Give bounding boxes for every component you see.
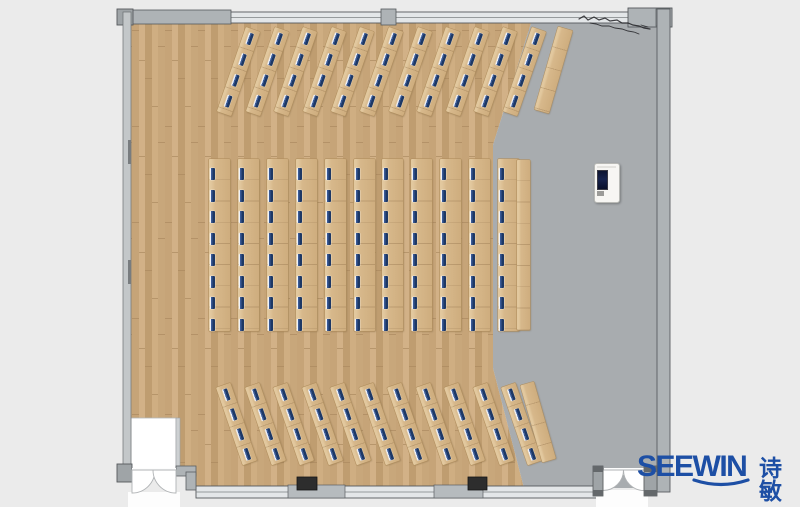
laptop-marker — [422, 388, 431, 401]
laptop-marker — [331, 32, 340, 45]
laptop-marker — [355, 297, 360, 309]
laptop-marker — [253, 95, 262, 108]
laptop-marker — [297, 297, 302, 309]
laptop-marker — [499, 448, 508, 461]
laptop-marker — [239, 254, 244, 266]
laptop-marker — [396, 95, 405, 108]
laptop-marker — [274, 32, 283, 45]
laptop-marker — [314, 408, 323, 421]
laptop-marker — [496, 53, 505, 66]
laptop-marker — [293, 428, 302, 441]
laptop-marker — [424, 95, 433, 108]
laptop-marker — [412, 190, 417, 202]
laptop-marker — [431, 74, 440, 87]
laptop-marker — [467, 53, 476, 66]
laptop-marker — [457, 408, 466, 421]
laptop-marker — [492, 428, 501, 441]
laptop-marker — [210, 233, 215, 245]
laptop-marker — [400, 408, 409, 421]
desk-row — [382, 159, 403, 331]
desk-row — [330, 383, 371, 465]
laptop-marker — [383, 233, 388, 245]
laptop-marker — [297, 168, 302, 180]
laptop-marker — [412, 233, 417, 245]
laptop-marker — [441, 319, 446, 331]
desk-row — [296, 159, 317, 331]
laptop-marker — [328, 448, 337, 461]
laptop-marker — [353, 53, 362, 66]
laptop-marker — [238, 53, 247, 66]
laptop-marker — [383, 168, 388, 180]
laptop-marker — [412, 319, 417, 331]
laptop-marker — [343, 408, 352, 421]
laptop-marker — [239, 319, 244, 331]
laptop-marker — [460, 74, 469, 87]
laptop-marker — [441, 233, 446, 245]
laptop-marker — [326, 168, 331, 180]
podium-slot — [597, 191, 604, 196]
laptop-marker — [481, 95, 490, 108]
laptop-marker — [471, 448, 480, 461]
laptop-marker — [229, 408, 238, 421]
laptop-marker — [446, 32, 455, 45]
laptop-marker — [371, 408, 380, 421]
laptop-marker — [355, 168, 360, 180]
desk-row — [360, 27, 403, 116]
desk-row — [216, 383, 257, 465]
laptop-marker — [303, 32, 312, 45]
laptop-marker — [268, 211, 273, 223]
laptop-marker — [295, 53, 304, 66]
laptop-marker — [338, 95, 347, 108]
laptop-marker — [326, 211, 331, 223]
laptop-marker — [470, 233, 475, 245]
laptop-marker — [499, 190, 504, 202]
laptop-marker — [326, 297, 331, 309]
laptop-marker — [470, 254, 475, 266]
laptop-marker — [297, 254, 302, 266]
desk-row — [444, 383, 485, 465]
laptop-marker — [357, 448, 366, 461]
laptop-marker — [499, 254, 504, 266]
laptop-marker — [239, 168, 244, 180]
laptop-marker — [383, 276, 388, 288]
laptop-marker — [268, 319, 273, 331]
desk-row — [217, 27, 260, 116]
laptop-marker — [210, 254, 215, 266]
laptop-marker — [326, 190, 331, 202]
laptop-marker — [210, 276, 215, 288]
laptop-marker — [271, 448, 280, 461]
desk-row — [325, 159, 346, 331]
laptop-marker — [268, 233, 273, 245]
desk-row — [245, 383, 286, 465]
laptop-marker — [350, 428, 359, 441]
laptop-marker — [383, 319, 388, 331]
laptop-marker — [326, 254, 331, 266]
laptop-marker — [470, 297, 475, 309]
podium-top-edge — [597, 166, 616, 168]
laptop-marker — [374, 74, 383, 87]
desk-row — [303, 27, 346, 116]
laptop-marker — [297, 319, 302, 331]
laptop-marker — [321, 428, 330, 441]
laptop-marker — [210, 297, 215, 309]
laptop-marker — [383, 190, 388, 202]
desk-row — [469, 159, 490, 331]
laptop-marker — [514, 408, 523, 421]
laptop-marker — [470, 211, 475, 223]
laptop-marker — [488, 74, 497, 87]
laptop-marker — [474, 32, 483, 45]
laptop-marker — [503, 32, 512, 45]
laptop-marker — [410, 53, 419, 66]
desk-row — [274, 27, 317, 116]
laptop-marker — [224, 95, 233, 108]
laptop-marker — [367, 95, 376, 108]
laptop-marker — [510, 95, 519, 108]
laptop-marker — [267, 53, 276, 66]
laptop-marker — [479, 388, 488, 401]
empty-desk-row — [517, 160, 530, 330]
laptop-marker — [239, 233, 244, 245]
laptop-marker — [412, 211, 417, 223]
laptop-marker — [378, 428, 387, 441]
laptop-marker — [210, 211, 215, 223]
front-angled-rows — [0, 0, 800, 507]
laptop-marker — [393, 388, 402, 401]
laptop-marker — [441, 254, 446, 266]
desk-row — [474, 27, 517, 116]
desk-row — [498, 159, 519, 331]
laptop-marker — [412, 254, 417, 266]
laptop-marker — [288, 74, 297, 87]
laptop-marker — [268, 297, 273, 309]
laptop-marker — [268, 190, 273, 202]
laptop-marker — [381, 53, 390, 66]
desk-row — [417, 27, 460, 116]
laptop-marker — [528, 448, 537, 461]
desk-layer — [0, 0, 800, 507]
laptop-marker — [485, 408, 494, 421]
laptop-marker — [286, 408, 295, 421]
laptop-marker — [412, 168, 417, 180]
laptop-marker — [355, 319, 360, 331]
desk-row — [446, 27, 489, 116]
laptop-marker — [210, 190, 215, 202]
desk-row — [331, 27, 374, 116]
laptop-marker — [239, 297, 244, 309]
desk-row — [440, 159, 461, 331]
empty-desk-row — [520, 382, 556, 463]
laptop-marker — [453, 95, 462, 108]
laptop-marker — [355, 254, 360, 266]
laptop-marker — [499, 211, 504, 223]
laptop-marker — [324, 53, 333, 66]
laptop-marker — [388, 32, 397, 45]
laptop-marker — [317, 74, 326, 87]
laptop-marker — [260, 74, 269, 87]
laptop-marker — [521, 428, 530, 441]
laptop-marker — [499, 168, 504, 180]
laptop-marker — [499, 319, 504, 331]
laptop-marker — [524, 53, 533, 66]
laptop-marker — [355, 190, 360, 202]
laptop-marker — [236, 428, 245, 441]
laptop-marker — [383, 254, 388, 266]
laptop-marker — [297, 233, 302, 245]
desk-row — [389, 27, 432, 116]
podium-screen — [597, 170, 608, 190]
laptop-marker — [345, 74, 354, 87]
desk-row — [238, 159, 259, 331]
desk-row — [359, 383, 400, 465]
desk-row — [209, 159, 230, 331]
laptop-marker — [300, 448, 309, 461]
laptop-marker — [222, 388, 231, 401]
laptop-marker — [464, 428, 473, 441]
laptop-marker — [264, 428, 273, 441]
laptop-marker — [360, 32, 369, 45]
laptop-marker — [441, 211, 446, 223]
laptop-marker — [417, 32, 426, 45]
laptop-marker — [470, 168, 475, 180]
desk-row — [473, 383, 514, 465]
laptop-marker — [383, 297, 388, 309]
floor-plan-canvas: SEEWIN 诗敏 — [0, 0, 800, 507]
desk-row — [416, 383, 457, 465]
laptop-marker — [245, 32, 254, 45]
laptop-marker — [517, 74, 526, 87]
laptop-marker — [268, 276, 273, 288]
brand-logo: SEEWIN 诗敏 — [628, 449, 800, 494]
rear-angled-rows — [0, 0, 800, 507]
laptop-marker — [268, 168, 273, 180]
desk-row — [246, 27, 289, 116]
brand-logo-cjk: 诗敏 — [759, 457, 800, 503]
laptop-marker — [428, 408, 437, 421]
laptop-marker — [412, 297, 417, 309]
laptop-marker — [414, 448, 423, 461]
laptop-marker — [239, 211, 244, 223]
laptop-marker — [470, 190, 475, 202]
laptop-marker — [412, 276, 417, 288]
empty-desk-row — [534, 27, 572, 114]
laptop-marker — [355, 211, 360, 223]
laptop-marker — [243, 448, 252, 461]
laptop-marker — [297, 276, 302, 288]
laptop-marker — [499, 276, 504, 288]
laptop-marker — [403, 74, 412, 87]
laptop-marker — [442, 448, 451, 461]
laptop-marker — [326, 233, 331, 245]
laptop-marker — [507, 388, 516, 401]
laptop-marker — [297, 190, 302, 202]
desk-row — [302, 383, 343, 465]
desk-row — [354, 159, 375, 331]
laptop-marker — [531, 32, 540, 45]
laptop-marker — [385, 448, 394, 461]
laptop-marker — [499, 233, 504, 245]
laptop-marker — [231, 74, 240, 87]
desk-row — [503, 27, 546, 116]
laptop-marker — [239, 276, 244, 288]
laptop-marker — [355, 276, 360, 288]
laptop-marker — [308, 388, 317, 401]
laptop-marker — [297, 211, 302, 223]
laptop-marker — [441, 190, 446, 202]
laptop-marker — [441, 168, 446, 180]
laptop-marker — [441, 297, 446, 309]
desk-row — [273, 383, 314, 465]
laptop-marker — [383, 211, 388, 223]
laptop-marker — [407, 428, 416, 441]
laptop-marker — [210, 168, 215, 180]
laptop-marker — [470, 276, 475, 288]
laptop-marker — [257, 408, 266, 421]
podium — [594, 163, 620, 203]
laptop-marker — [336, 388, 345, 401]
desk-row — [267, 159, 288, 331]
laptop-marker — [239, 190, 244, 202]
laptop-marker — [499, 297, 504, 309]
laptop-marker — [310, 95, 319, 108]
laptop-marker — [355, 233, 360, 245]
laptop-marker — [435, 428, 444, 441]
laptop-marker — [470, 319, 475, 331]
laptop-marker — [450, 388, 459, 401]
laptop-marker — [438, 53, 447, 66]
laptop-marker — [441, 276, 446, 288]
laptop-marker — [326, 276, 331, 288]
desk-row — [387, 383, 428, 465]
laptop-marker — [326, 319, 331, 331]
laptop-marker — [210, 319, 215, 331]
desk-row — [411, 159, 432, 331]
laptop-marker — [279, 388, 288, 401]
middle-straight-rows — [0, 0, 800, 507]
laptop-marker — [251, 388, 260, 401]
laptop-marker — [365, 388, 374, 401]
laptop-marker — [281, 95, 290, 108]
desk-row — [501, 383, 542, 465]
laptop-marker — [268, 254, 273, 266]
